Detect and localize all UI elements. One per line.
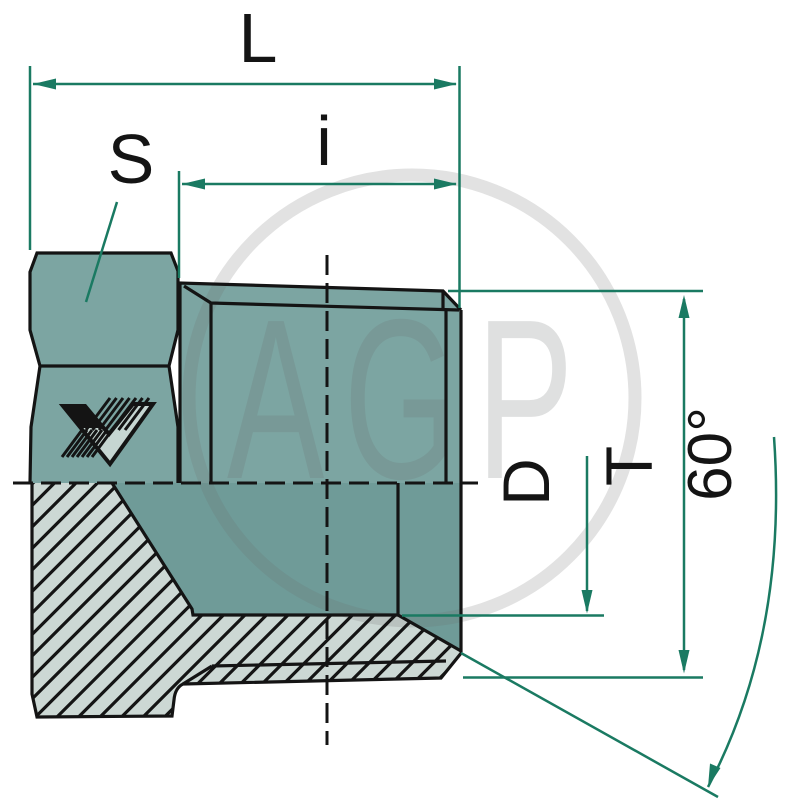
label-thread-length: i xyxy=(316,102,332,180)
label-outer-diameter: T xyxy=(592,446,666,486)
arrow-L-left xyxy=(33,79,56,90)
label-overall-length: L xyxy=(239,0,278,77)
arrow-T-top xyxy=(679,295,690,318)
arrow-D-bottom xyxy=(582,590,593,614)
technical-drawing: AGP xyxy=(0,0,800,800)
label-thread-diameter: D xyxy=(489,458,563,506)
arrow-i-left xyxy=(182,179,205,190)
drawing-canvas: AGP xyxy=(0,0,800,800)
arrow-T-bottom xyxy=(679,650,690,674)
label-hex-size: S xyxy=(108,120,155,198)
angle-60-slant-line xyxy=(461,653,718,797)
arrow-L-right xyxy=(434,79,457,90)
label-cone-angle: 60° xyxy=(676,407,745,501)
